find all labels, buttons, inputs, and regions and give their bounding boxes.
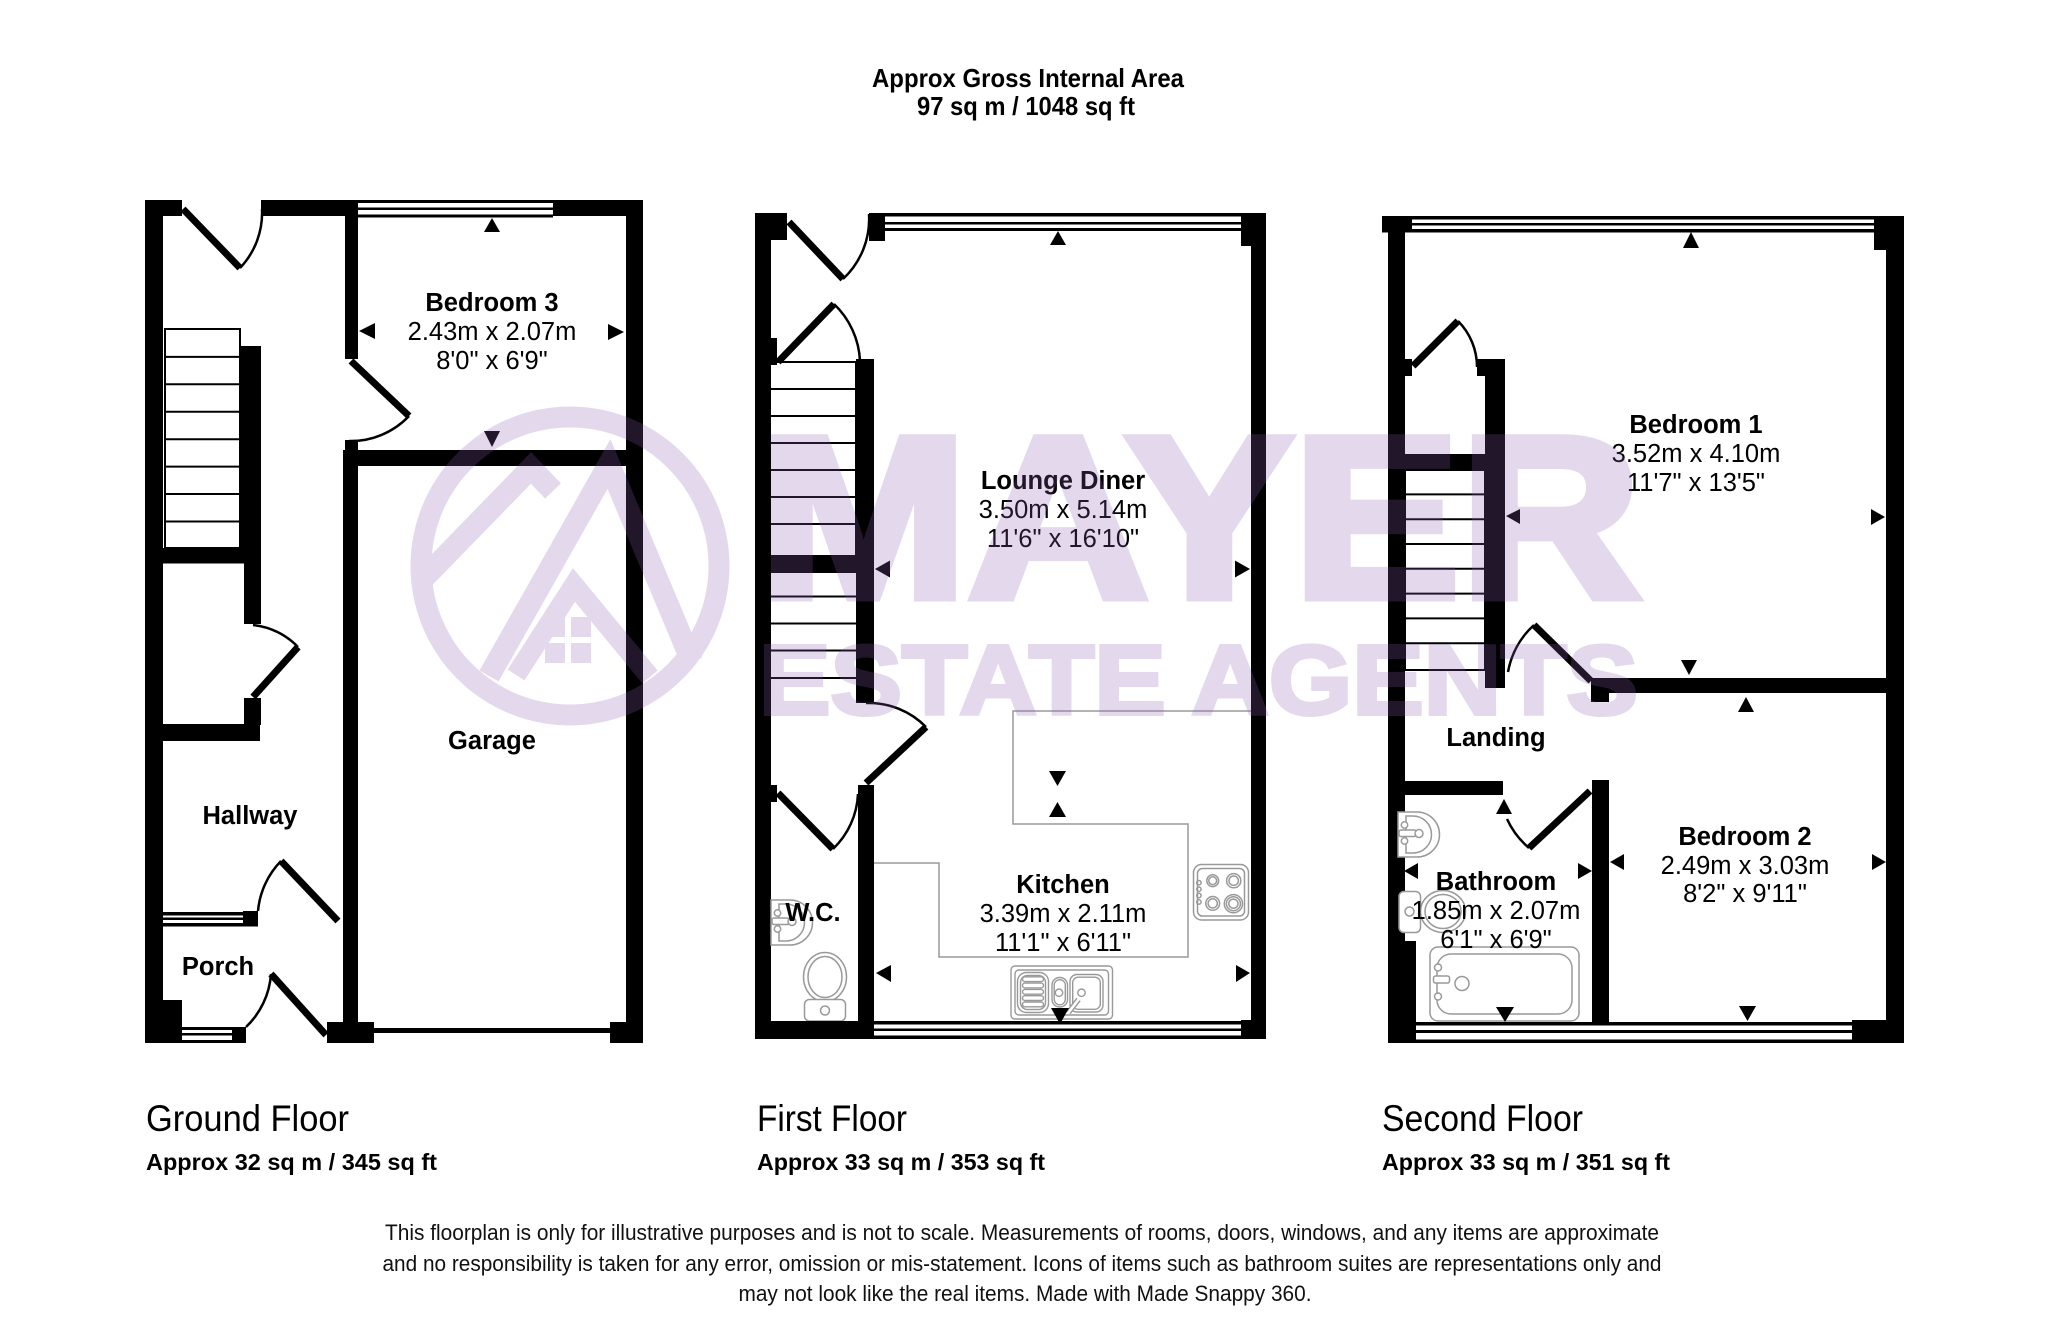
svg-text:2.49m x 3.03m: 2.49m x 3.03m bbox=[1661, 852, 1830, 880]
svg-text:Porch: Porch bbox=[182, 953, 254, 981]
svg-text:Hallway: Hallway bbox=[203, 802, 299, 830]
svg-text:8'0" x 6'9": 8'0" x 6'9" bbox=[436, 347, 548, 375]
svg-text:Bedroom 3: Bedroom 3 bbox=[425, 289, 558, 317]
svg-text:Bedroom 2: Bedroom 2 bbox=[1678, 823, 1811, 851]
svg-text:Approx 33 sq m / 351 sq ft: Approx 33 sq m / 351 sq ft bbox=[1382, 1149, 1670, 1175]
svg-text:Kitchen: Kitchen bbox=[1016, 871, 1110, 899]
svg-text:First Floor: First Floor bbox=[757, 1098, 907, 1139]
svg-text:MAYER: MAYER bbox=[759, 389, 1641, 646]
svg-text:and no responsibility is taken: and no responsibility is taken for any e… bbox=[383, 1251, 1662, 1276]
svg-text:Bathroom: Bathroom bbox=[1436, 868, 1556, 896]
svg-text:Approx Gross Internal Area: Approx Gross Internal Area bbox=[872, 63, 1184, 93]
svg-text:This floorplan is only for ill: This floorplan is only for illustrative … bbox=[385, 1220, 1659, 1245]
svg-text:Garage: Garage bbox=[448, 727, 536, 755]
svg-text:Ground Floor: Ground Floor bbox=[146, 1098, 349, 1139]
svg-text:3.39m x 2.11m: 3.39m x 2.11m bbox=[980, 900, 1147, 928]
svg-text:8'2" x 9'11": 8'2" x 9'11" bbox=[1683, 880, 1807, 908]
svg-text:Bedroom 1: Bedroom 1 bbox=[1629, 411, 1762, 439]
svg-text:Second Floor: Second Floor bbox=[1382, 1098, 1583, 1139]
svg-text:may not look like the real ite: may not look like the real items. Made w… bbox=[739, 1281, 1312, 1306]
svg-text:W.C.: W.C. bbox=[785, 899, 840, 927]
svg-text:6'1" x 6'9": 6'1" x 6'9" bbox=[1440, 926, 1552, 954]
svg-text:97 sq m / 1048 sq ft: 97 sq m / 1048 sq ft bbox=[917, 91, 1135, 121]
svg-text:Approx 33 sq m / 353 sq ft: Approx 33 sq m / 353 sq ft bbox=[757, 1149, 1045, 1175]
svg-text:1.85m x 2.07m: 1.85m x 2.07m bbox=[1412, 897, 1581, 925]
svg-text:ESTATE AGENTS: ESTATE AGENTS bbox=[759, 625, 1638, 735]
svg-text:11'7" x 13'5": 11'7" x 13'5" bbox=[1627, 469, 1765, 497]
svg-text:2.43m x 2.07m: 2.43m x 2.07m bbox=[408, 318, 577, 346]
svg-text:11'1" x 6'11": 11'1" x 6'11" bbox=[995, 929, 1131, 957]
svg-text:Approx 32 sq m / 345 sq ft: Approx 32 sq m / 345 sq ft bbox=[146, 1149, 437, 1175]
